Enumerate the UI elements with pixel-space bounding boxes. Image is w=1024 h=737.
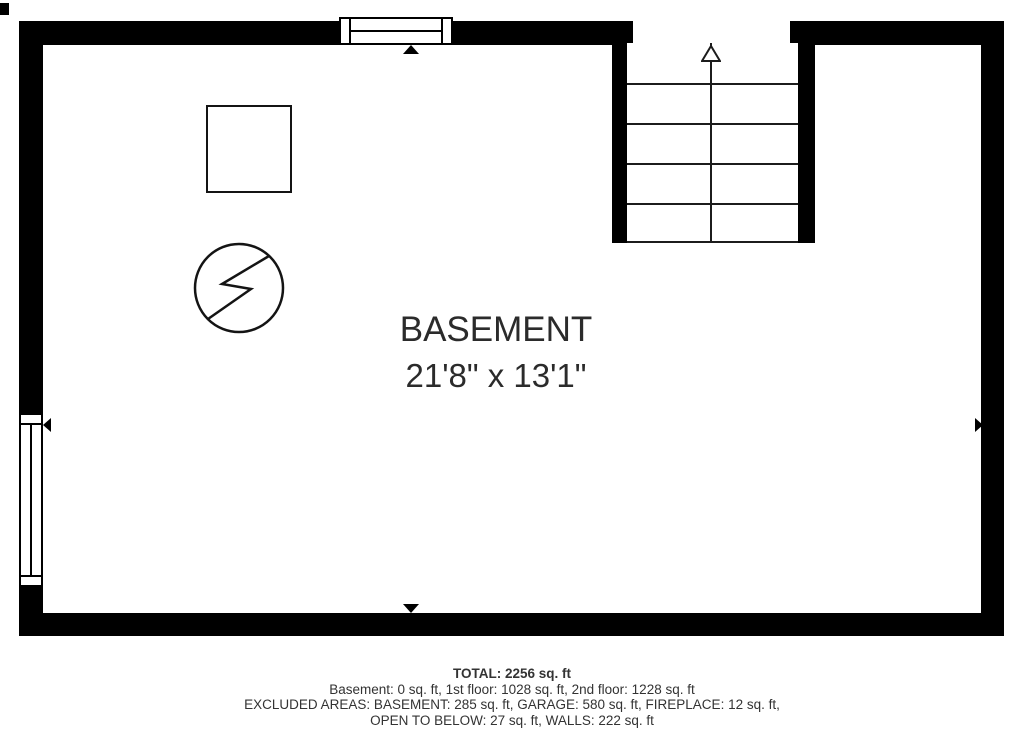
stair-tread-line: [627, 163, 798, 165]
summary-excluded-line2: OPEN TO BELOW: 27 sq. ft, WALLS: 222 sq.…: [0, 713, 1024, 729]
wall-right: [981, 21, 1004, 636]
window-jamb-line: [21, 575, 41, 577]
wall-bottom: [19, 613, 1004, 636]
dimension-arrow-down-icon: [403, 604, 419, 613]
window-pane-line: [30, 425, 32, 575]
stairwell-wall-left: [612, 43, 627, 243]
room-label: BASEMENT: [296, 311, 696, 349]
room-dimensions: 21'8" x 13'1": [296, 357, 696, 395]
wall-top-middle-segment: [453, 21, 633, 45]
dimension-arrow-up-icon: [403, 45, 419, 54]
summary-floors: Basement: 0 sq. ft, 1st floor: 1028 sq. …: [0, 682, 1024, 698]
page-edge-mark: [0, 3, 9, 15]
furnace-square-symbol: [206, 105, 292, 193]
dimension-arrow-left-icon: [43, 418, 51, 432]
stairwell-wall-right: [798, 43, 815, 243]
wall-top-left-segment: [19, 21, 339, 45]
stair-run-centerline: [710, 43, 712, 241]
staircase: [627, 43, 798, 243]
stairs-up-arrow-icon: [701, 45, 721, 63]
dimension-arrow-right-icon: [975, 418, 983, 432]
wall-left-upper-segment: [19, 21, 43, 413]
area-summary: TOTAL: 2256 sq. ft Basement: 0 sq. ft, 1…: [0, 666, 1024, 728]
stair-tread-line: [627, 83, 798, 85]
stair-tread-line: [627, 123, 798, 125]
window-left-wall: [19, 413, 43, 587]
window-top-wall: [339, 17, 453, 45]
floorplan-canvas: BASEMENT 21'8" x 13'1" TOTAL: 2256 sq. f…: [0, 0, 1024, 737]
window-pane-line: [350, 30, 442, 32]
summary-total: TOTAL: 2256 sq. ft: [0, 666, 1024, 682]
stair-tread-line: [627, 203, 798, 205]
wall-top-right-segment: [790, 21, 1004, 45]
summary-excluded-line1: EXCLUDED AREAS: BASEMENT: 285 sq. ft, GA…: [0, 697, 1024, 713]
water-heater-circle-bolt-icon: [193, 242, 285, 334]
